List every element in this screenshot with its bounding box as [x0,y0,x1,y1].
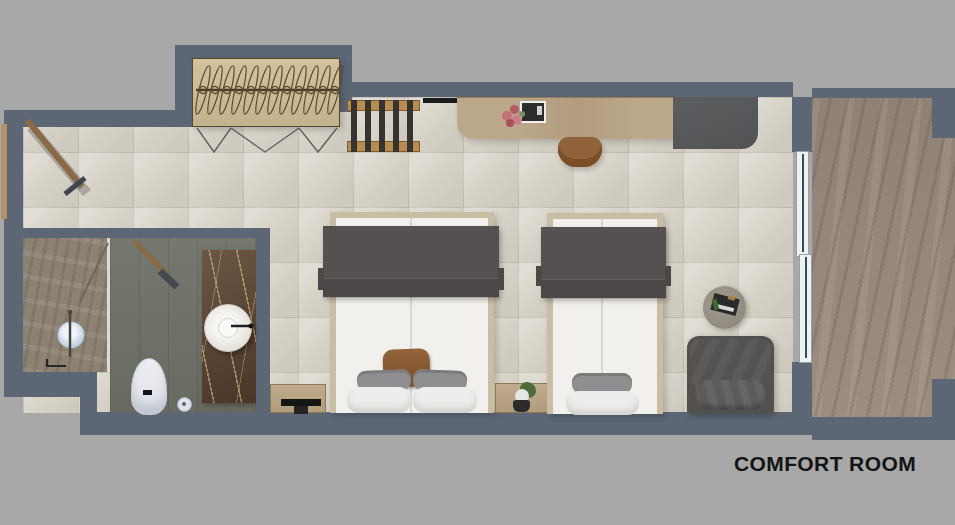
desk-chair [558,137,602,167]
wall-top [352,82,793,97]
toilet [131,358,167,415]
luggage-rack-strap [351,100,357,152]
shower-glass-panel [107,238,110,372]
luggage-rack-strap [379,100,385,152]
shower-head [57,321,85,349]
desk [457,97,673,139]
blanket-corner [665,266,671,286]
nightstand-tray [281,399,321,406]
wall-bathroom-top [23,228,270,238]
flower-vase [502,105,528,129]
wall-bottom [97,412,812,435]
armchair [687,336,774,414]
sliding-door-panel [799,254,812,363]
sliding-door-glass-line [805,257,807,358]
luggage-rack-strap [407,100,413,152]
luggage-rack [347,100,420,152]
sliding-door-panel [796,151,809,257]
wall-balcony-bottom [812,417,955,440]
blanket-corner [498,268,504,290]
flower-blossom [510,105,519,114]
luggage-rack-strap [393,100,399,152]
armchair-seat-cushion [695,380,766,410]
flower-blossom [506,119,514,127]
pillow-white [413,387,477,413]
tv-cabinet [673,97,758,149]
wall-bathroom-right [256,228,270,412]
floor-drain-center [182,402,186,406]
nightstand-tray-base [294,406,308,414]
sliding-door-glass-line [802,154,804,252]
wall-bottom-left-step [80,372,97,435]
plant-pot [513,400,530,412]
coffee-machine-detail [537,106,542,115]
entry-door-frame [1,124,7,219]
wall-closet-top [175,45,352,58]
wall-balcony-notch-bottom [932,379,955,417]
blanket-corner [536,266,542,286]
wall-window-stub-top [792,97,812,152]
sink-bowl [218,318,238,338]
floor-plan-canvas: COMFORT ROOM [0,0,955,525]
bed-single-blanket [541,227,666,298]
pillow-white [566,391,639,415]
blanket-corner [318,268,324,290]
pillow-white [347,387,411,413]
wall-balcony-notch-top [932,95,955,138]
shower-floor [23,238,110,372]
wall-window-stub-bottom [792,362,812,413]
balcony-floor [812,97,955,418]
wall-top-left [4,110,177,127]
luggage-rack-strap [365,100,371,152]
blanket-fold [541,279,666,299]
bed-double-blanket [323,226,499,297]
blanket-fold [323,278,499,298]
flower-leaf [519,111,525,117]
wardrobe [192,58,340,127]
page-title: COMFORT ROOM [705,452,945,476]
